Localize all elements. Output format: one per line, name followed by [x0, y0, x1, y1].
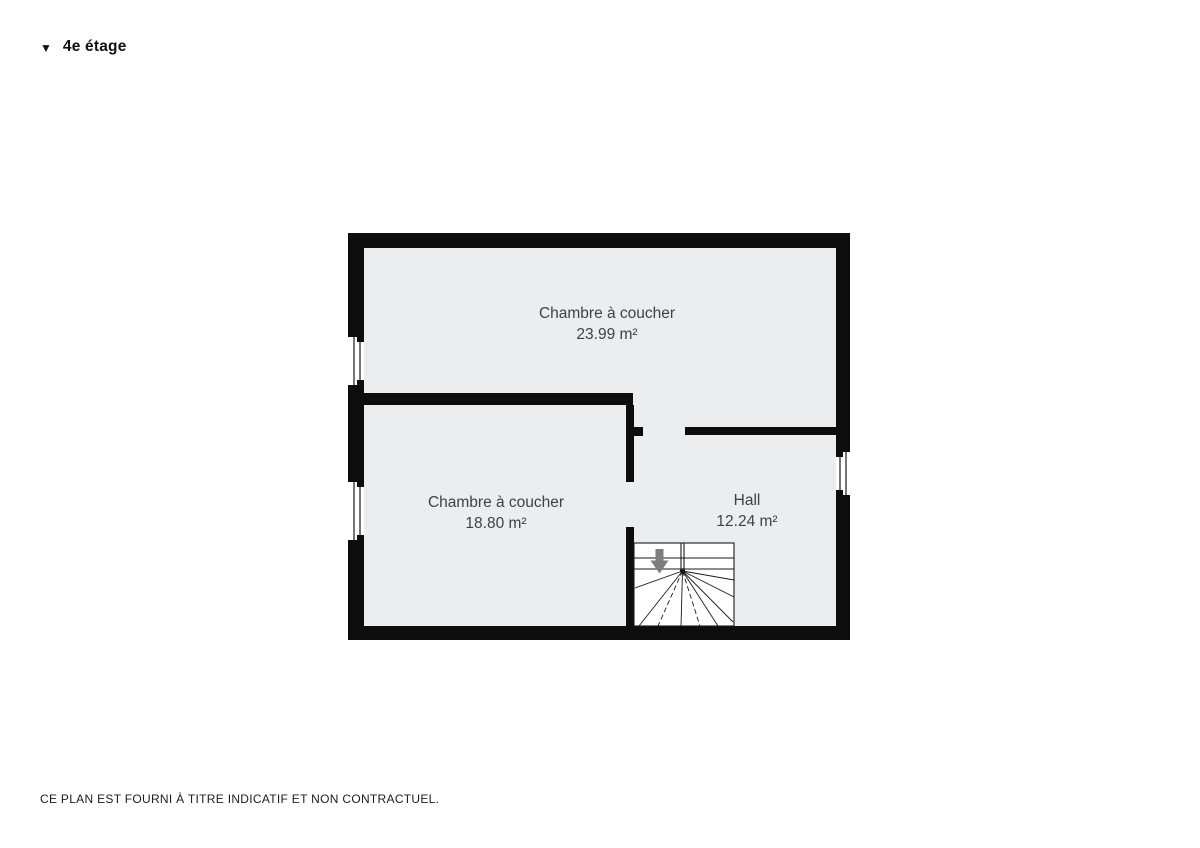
window-symbol-hall — [836, 452, 850, 495]
wall-exterior-top — [348, 233, 850, 248]
wall-hall-left-lower — [626, 527, 634, 626]
staircase — [634, 543, 734, 626]
wall-exterior-right — [836, 233, 850, 640]
window-symbol-top-bedroom — [348, 337, 364, 385]
wall-door-stub — [633, 427, 643, 436]
floor-plan-page: ▼ 4e étage — [0, 0, 1200, 848]
wall-exterior-bottom — [348, 626, 850, 640]
floor-area — [352, 238, 846, 634]
wall-exterior-left — [348, 233, 364, 640]
plan-disclaimer: CE PLAN EST FOURNI À TITRE INDICATIF ET … — [40, 792, 439, 806]
wall-hall-left-upper — [626, 405, 634, 482]
window-symbol-bottom-bedroom — [348, 482, 364, 540]
floor-plan-drawing — [0, 0, 1200, 848]
wall-hall-divider — [685, 427, 836, 435]
wall-bedroom-divider — [364, 393, 633, 405]
